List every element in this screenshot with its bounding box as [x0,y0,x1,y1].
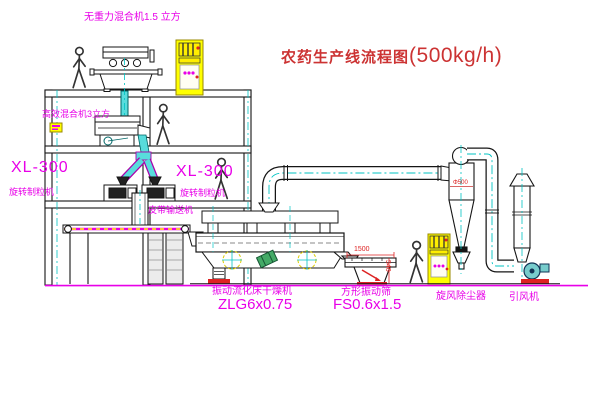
screen-height-dimension: 540 [384,260,391,272]
diagram-title: 农药生产线流程图(500kg/h) [281,44,502,68]
control-cabinet-top [176,40,203,95]
fan-label: 引风机 [509,293,539,303]
belt-conveyor-label: 皮带输送机 [148,206,193,215]
pesticide-production-line-diagram: 无重力混合机1.5 立方 农药生产线流程图(500kg/h) 高效混合机3立方 … [0,0,600,403]
granulator-left-name-label: 旋转制粒机 [9,188,54,197]
ground-line [45,284,588,286]
screen-length-dimension: 1500 [354,246,370,253]
granulator-left-model-label: XL-300 [11,160,69,176]
control-cabinet-bottom [428,234,450,284]
induced-draft-fan [521,263,549,284]
exhaust-duct [259,165,452,212]
fluid-bed-dryer [188,206,344,284]
belt-conveyor [63,225,190,284]
cyclone-diameter-dimension: Φ500 [453,180,468,186]
diagram-title-name: 农药生产线流程图 [281,49,409,66]
diagram-title-capacity: (500kg/h) [409,44,502,67]
screen-model-label: FS0.6x1.5 [333,297,401,312]
gravity-free-mixer-label: 无重力混合机1.5 立方 [84,13,181,23]
cyclone-label: 旋风除尘器 [436,292,486,302]
high-efficiency-mixer-label: 高效混合机3立方 [42,110,110,119]
dryer-model-label: ZLG6x0.75 [218,297,292,312]
high-efficiency-mixer [50,116,150,146]
granulator-right-model-label: XL-300 [176,164,234,180]
cyclone-dust-collector [449,145,474,274]
granulator-right-name-label: 旋转制粒机 [180,189,225,198]
